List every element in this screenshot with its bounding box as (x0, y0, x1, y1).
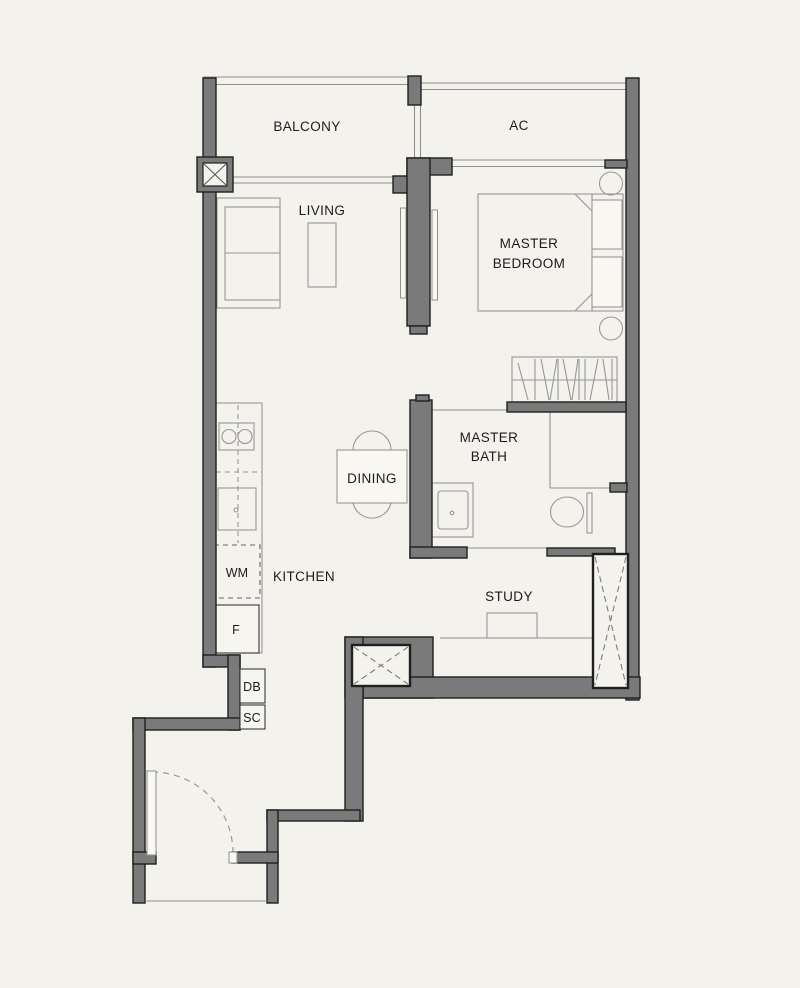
room-label-master-bedroom-1: MASTER (500, 236, 559, 251)
wall-bath-right-stub (610, 483, 627, 492)
room-label-master-bath-2: BATH (471, 449, 508, 464)
side-table (600, 317, 623, 340)
room-label-master-bedroom-2: BEDROOM (493, 256, 566, 271)
room-labels: BALCONY AC LIVING MASTER BEDROOM DINING … (226, 118, 566, 725)
door-leaf (147, 771, 156, 855)
side-table (600, 172, 623, 195)
bed-corner-fold (575, 294, 592, 311)
wall-pier-flange (393, 176, 408, 193)
toilet-cistern (587, 493, 592, 533)
floor-plan-svg: BALCONY AC LIVING MASTER BEDROOM DINING … (0, 0, 800, 988)
column-marker (197, 157, 233, 192)
balcony-parapet (203, 77, 420, 85)
entrance-door (145, 771, 267, 901)
door-swing-arc (152, 772, 233, 853)
bedroom-furniture (478, 172, 623, 402)
living-window (233, 177, 393, 183)
kitchen-fixtures (213, 403, 262, 653)
bed-corner-fold (575, 194, 592, 211)
fixture-label-wm: WM (226, 566, 249, 580)
floor-plan: BALCONY AC LIVING MASTER BEDROOM DINING … (0, 0, 800, 988)
room-label-study: STUDY (485, 589, 533, 604)
basin (438, 491, 468, 529)
coffee-table (308, 223, 336, 287)
sliding-door-panel (401, 208, 407, 298)
wall-pier-tip (410, 326, 427, 334)
fixture-label-sc: SC (243, 711, 261, 725)
room-label-master-bath-1: MASTER (460, 430, 519, 445)
wall-wardrobe-bottom (507, 402, 626, 412)
room-label-ac: AC (509, 118, 529, 133)
bedroom-window (452, 160, 605, 167)
fixture-label-f: F (232, 623, 240, 637)
sink-bowl (222, 430, 236, 444)
study-furniture (440, 613, 593, 638)
duct-shaft (352, 645, 410, 686)
kitchen-hob (218, 488, 256, 530)
wall-left-lower (133, 718, 145, 903)
room-label-living: LIVING (299, 203, 346, 218)
shower-screen (550, 410, 612, 488)
wall-bath-left-foot (410, 547, 467, 558)
dining-chair (353, 431, 391, 450)
fixture-label-db: DB (243, 680, 261, 694)
bath-fixtures (431, 410, 612, 548)
wall-pier-column (407, 158, 430, 326)
wall-entry-right-horizontal (267, 810, 360, 821)
room-label-kitchen: KITCHEN (273, 569, 335, 584)
door-latch-plate (229, 852, 237, 863)
wall-balcony-divider-stub (408, 76, 421, 105)
pillow (592, 200, 622, 249)
sink-bowl (238, 430, 252, 444)
toilet-bowl (551, 497, 584, 527)
wall-window-right-stub (605, 160, 627, 168)
wall-bath-notch (416, 395, 429, 401)
room-label-dining: DINING (347, 471, 397, 486)
closet-shaft (593, 554, 628, 688)
hob-knob (234, 508, 238, 512)
wall-bath-left (410, 400, 432, 558)
pillow (592, 257, 622, 307)
wall-door-stop-right (232, 852, 278, 863)
wall-foyer-top (133, 718, 240, 730)
basin-drain (450, 511, 454, 515)
room-label-balcony: BALCONY (273, 119, 340, 134)
sliding-door-panel (432, 210, 438, 300)
study-chair (487, 613, 537, 638)
dining-chair (353, 503, 391, 518)
